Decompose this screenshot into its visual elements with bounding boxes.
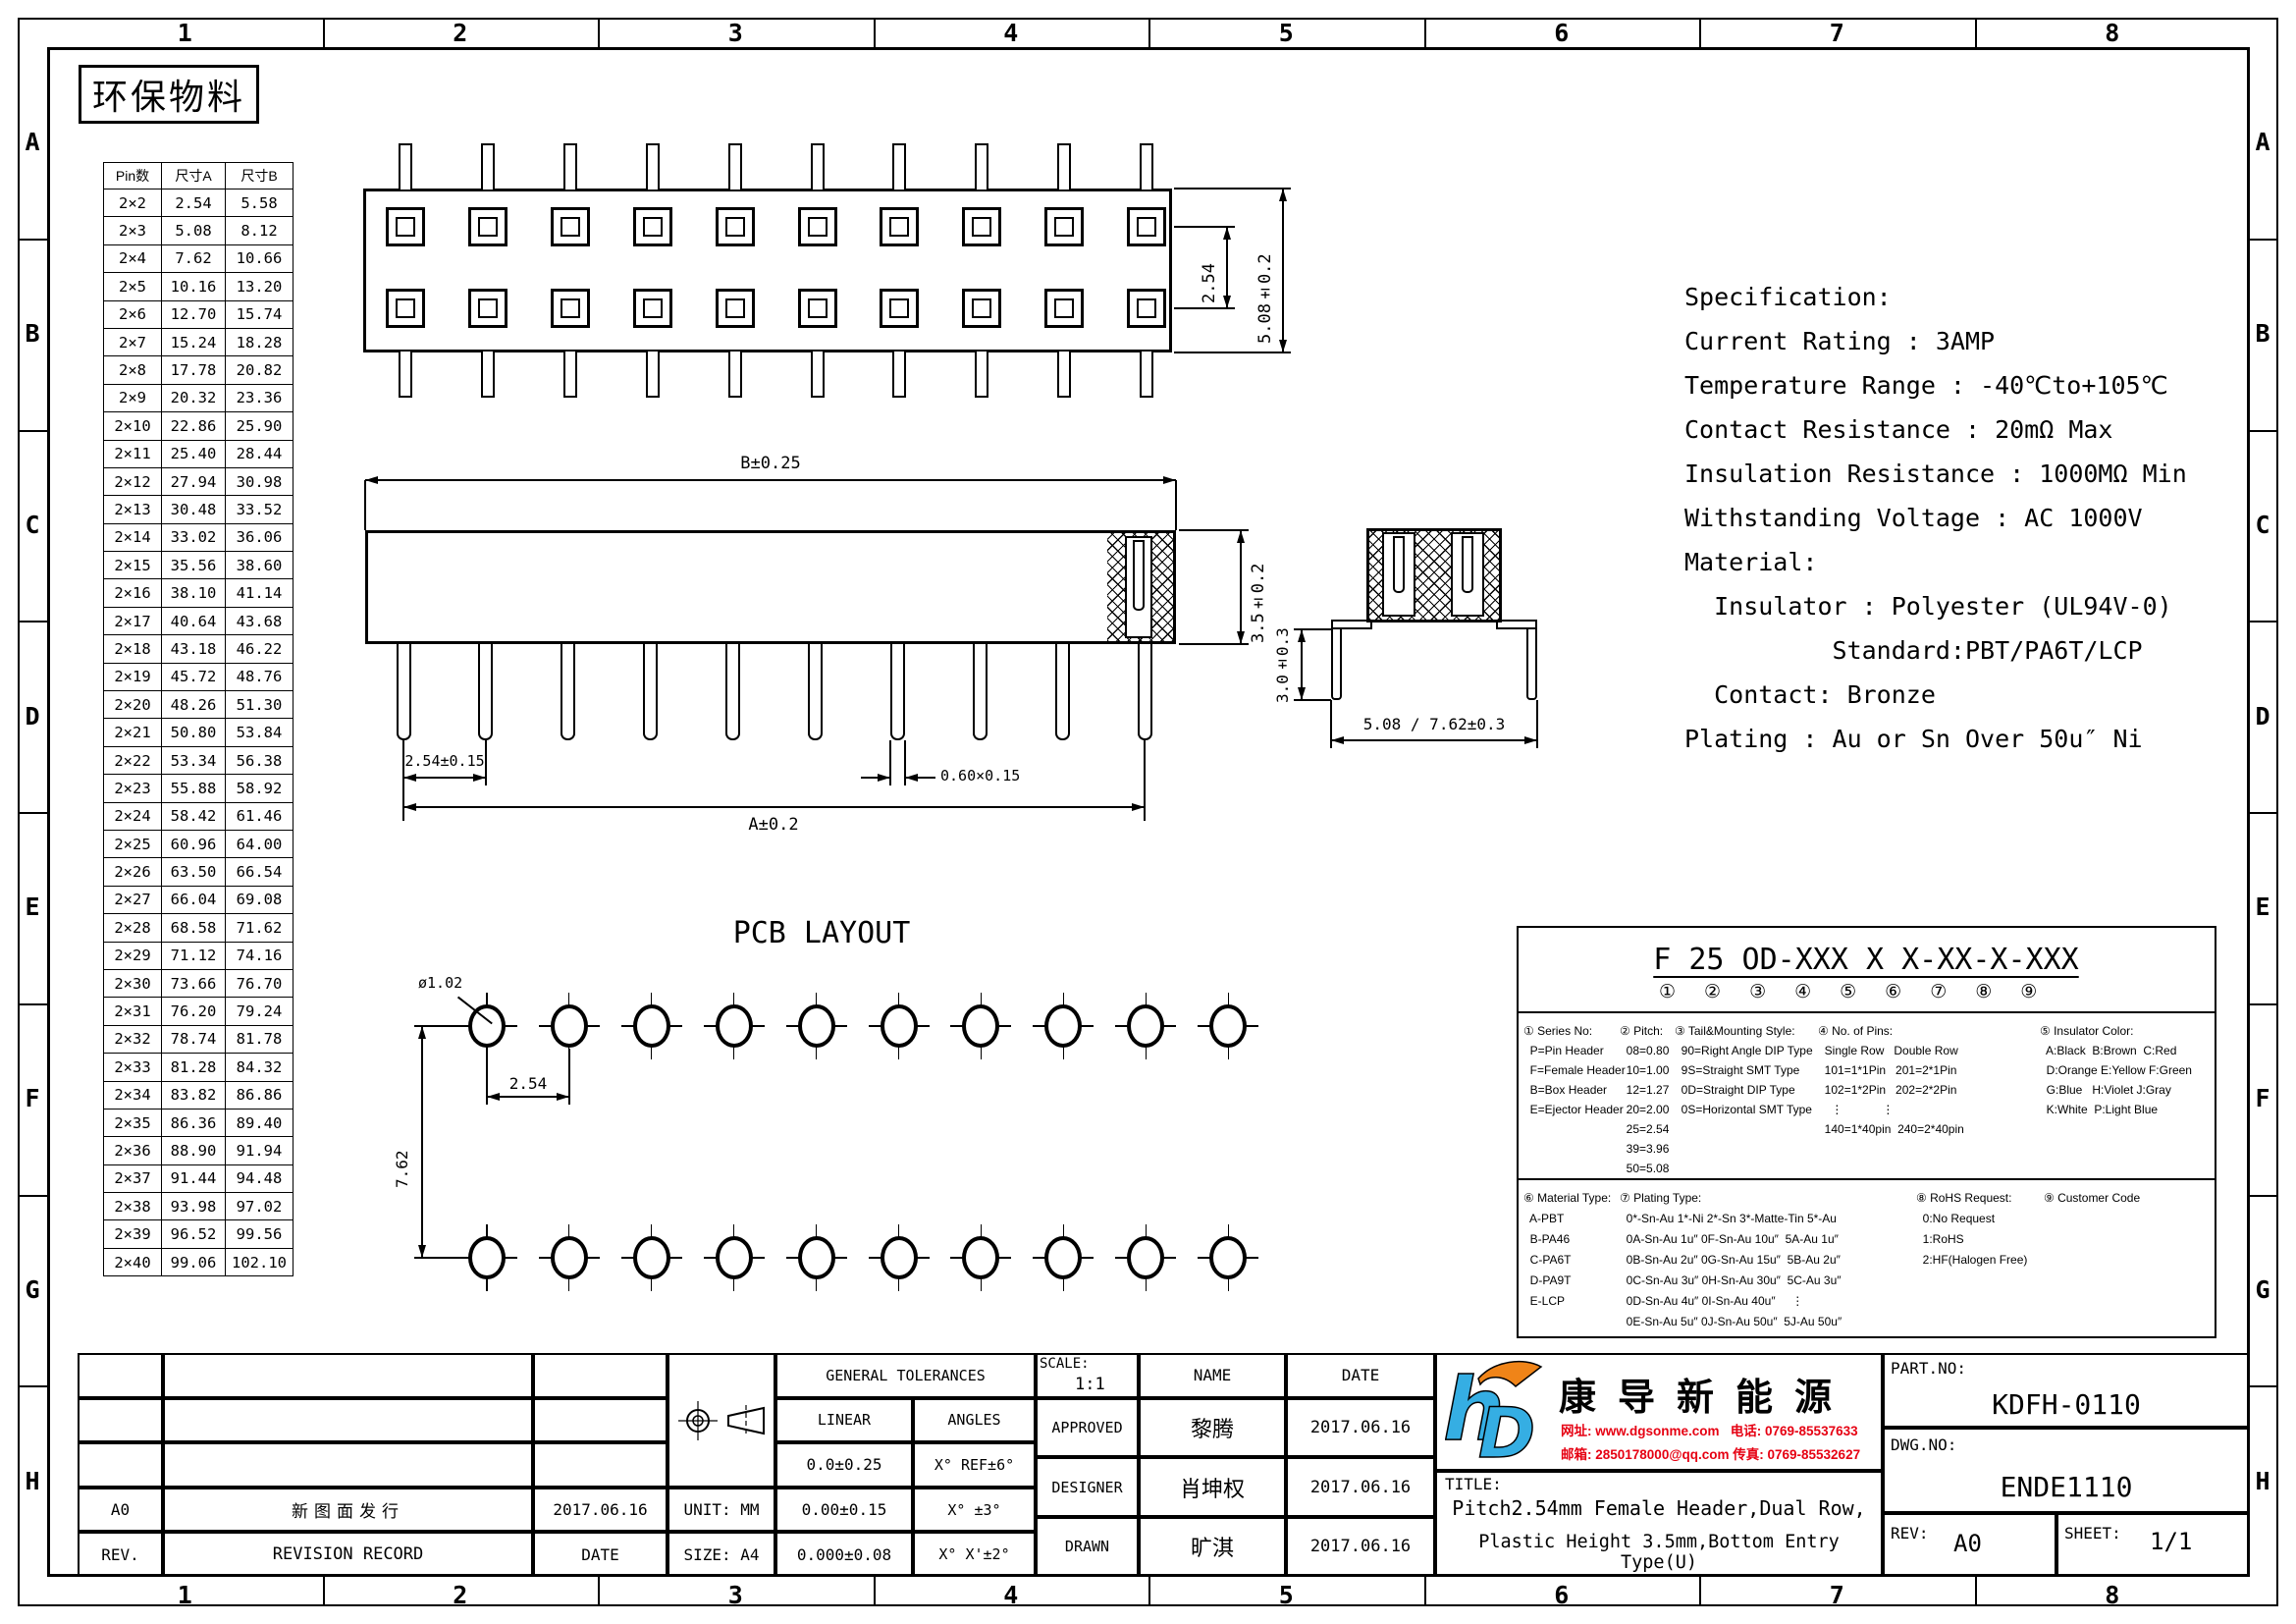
tolerance-angles-header: ANGLES xyxy=(913,1398,1036,1443)
sheet-value: 1/1 xyxy=(2150,1528,2192,1555)
side-view-leg-left xyxy=(1331,627,1342,700)
revision-cell xyxy=(163,1398,533,1443)
dimension-arrow xyxy=(365,476,378,484)
ordering-section: ④ No. of Pins: Single Row Double Row 101… xyxy=(1818,1021,1964,1139)
signoff-name: 肖坤权 xyxy=(1139,1457,1286,1517)
table-row: 2×1945.7248.76 xyxy=(104,663,294,690)
top-view-pin xyxy=(399,143,412,191)
frame-column-label: 2 xyxy=(323,19,599,47)
pcb-hole xyxy=(798,1236,835,1279)
dimension-arrow xyxy=(1223,296,1231,308)
top-view-contact-inner xyxy=(889,217,909,237)
dimension-arrow xyxy=(487,1093,500,1101)
top-view-contact-inner xyxy=(561,298,580,318)
table-row: 2×47.6210.66 xyxy=(104,244,294,272)
frame-row-label: G xyxy=(2248,1275,2277,1304)
frame-tick xyxy=(2250,1385,2278,1387)
tolerance-linear-value: 0.000±0.08 xyxy=(775,1532,913,1577)
pcb-hole xyxy=(798,1004,835,1048)
side-view-leg-right xyxy=(1526,627,1537,700)
name-header: NAME xyxy=(1139,1353,1286,1398)
signoff-name: 黎腾 xyxy=(1139,1398,1286,1458)
spec-line: Insulation Resistance : 1000MΩ Min xyxy=(1684,460,2187,488)
dimension-line xyxy=(1174,352,1291,353)
frame-row-label: F xyxy=(18,1084,47,1112)
table-row: 2×510.1613.20 xyxy=(104,273,294,300)
frame-tick xyxy=(18,1003,47,1005)
table-row: 2×3688.9091.94 xyxy=(104,1137,294,1164)
table-row: 2×2048.2651.30 xyxy=(104,691,294,719)
revision-cell: A0 xyxy=(78,1488,163,1533)
ordering-section: ⑤ Insulator Color: A:Black B:Brown C:Red… xyxy=(2040,1021,2192,1119)
table-row: 2×1535.5638.60 xyxy=(104,552,294,579)
signoff-date: 2017.06.16 xyxy=(1286,1398,1435,1458)
table-row: 2×22.545.58 xyxy=(104,189,294,217)
frame-row-label: C xyxy=(18,511,47,539)
projection-cone-icon xyxy=(725,1405,767,1436)
table-row: 2×920.3223.36 xyxy=(104,384,294,411)
part-no-label: PART.NO: xyxy=(1891,1359,1966,1378)
dimension-arrow xyxy=(1298,687,1306,700)
top-view-pin xyxy=(399,350,412,398)
signoff-role: APPROVED xyxy=(1036,1398,1139,1458)
front-view-pin xyxy=(973,644,988,740)
table-row: 2×1330.4833.52 xyxy=(104,496,294,523)
table-row: 2×1638.1041.14 xyxy=(104,579,294,607)
top-view-contact-inner xyxy=(725,217,745,237)
frame-row-label: E xyxy=(18,893,47,921)
frame-column-label: 6 xyxy=(1424,19,1700,47)
drawing-title-line1: Pitch2.54mm Female Header,Dual Row, xyxy=(1435,1496,1883,1520)
revision-cell: 2017.06.16 xyxy=(533,1488,667,1533)
frame-tick xyxy=(2250,621,2278,623)
ordering-section: ⑨ Customer Code xyxy=(2044,1188,2140,1209)
eco-material-stamp: 环保物料 xyxy=(79,65,259,124)
spec-line: Standard:PBT/PA6T/LCP xyxy=(1684,636,2143,665)
frame-tick xyxy=(2250,430,2278,432)
table-row: 2×817.7820.82 xyxy=(104,356,294,384)
dimension-line xyxy=(403,806,1145,808)
frame-tick xyxy=(18,621,47,623)
table-row: 2×715.2418.28 xyxy=(104,328,294,355)
top-view-contact-inner xyxy=(643,298,663,318)
dimension-line xyxy=(1331,739,1537,741)
top-view-contact-inner xyxy=(1137,298,1156,318)
front-view-pin xyxy=(561,644,575,740)
ordering-divider-2 xyxy=(1517,1178,2216,1180)
frame-tick xyxy=(1699,18,1701,47)
pcb-hole xyxy=(551,1236,588,1279)
front-view-pin xyxy=(1055,644,1070,740)
frame-column-label: 4 xyxy=(874,1581,1149,1609)
tolerance-angles-value: X° REF±6° xyxy=(913,1442,1036,1488)
table-row: 2×1433.0236.06 xyxy=(104,523,294,551)
revision-cell xyxy=(78,1398,163,1443)
dimension-arrow xyxy=(403,803,416,811)
dimension-arrow xyxy=(1223,227,1231,240)
table-row: 2×2355.8858.92 xyxy=(104,775,294,802)
sheet-label: SHEET: xyxy=(2064,1524,2121,1543)
frame-tick xyxy=(18,239,47,241)
side-view-span-dim: 5.08 / 7.62±0.3 xyxy=(1356,715,1513,733)
pcb-hole xyxy=(716,1004,753,1048)
front-view-body xyxy=(365,530,1176,644)
frame-tick xyxy=(2250,1003,2278,1005)
frame-row-label: G xyxy=(18,1275,47,1304)
table-row: 2×35.088.12 xyxy=(104,217,294,244)
top-view-pin xyxy=(892,143,906,191)
frame-column-label: 6 xyxy=(1424,1581,1700,1609)
revision-cell xyxy=(163,1353,533,1398)
rev-value: A0 xyxy=(1953,1530,1982,1557)
frame-row-label: C xyxy=(2248,511,2277,539)
dimension-arrow xyxy=(403,774,416,782)
frame-tick xyxy=(18,1385,47,1387)
pcb-row-dim: 7.62 xyxy=(393,1098,411,1188)
frame-row-label: D xyxy=(2248,702,2277,731)
top-view-pin xyxy=(646,350,660,398)
dimension-arrow xyxy=(473,774,486,782)
top-view-contact-inner xyxy=(478,217,498,237)
spec-line: Insulator : Polyester (UL94V-0) xyxy=(1684,592,2172,621)
table-row: 2×1022.8625.90 xyxy=(104,412,294,440)
frame-tick xyxy=(323,1577,325,1606)
pcb-hole xyxy=(468,1236,506,1279)
pcb-hole xyxy=(468,1004,506,1048)
table-row: 2×2253.3456.38 xyxy=(104,746,294,774)
pcb-hole-dim: ø1.02 xyxy=(418,974,462,992)
frame-column-label: 8 xyxy=(1975,1581,2251,1609)
dimension-arrow xyxy=(1524,736,1537,744)
top-view-pin xyxy=(892,350,906,398)
tolerance-header: GENERAL TOLERANCES xyxy=(775,1353,1036,1398)
signoff-role: DESIGNER xyxy=(1036,1457,1139,1517)
frame-column-label: 4 xyxy=(874,19,1149,47)
table-row: 2×2560.9664.00 xyxy=(104,830,294,857)
frame-tick xyxy=(1424,18,1426,47)
table-row: 2×3893.9897.02 xyxy=(104,1193,294,1220)
spec-line: Contact: Bronze xyxy=(1684,680,1936,709)
frame-row-label: H xyxy=(18,1467,47,1495)
company-logo: h D xyxy=(1445,1359,1547,1465)
top-view-contact-inner xyxy=(1054,217,1074,237)
size-cell: SIZE: A4 xyxy=(667,1532,775,1577)
signoff-date: 2017.06.16 xyxy=(1286,1457,1435,1517)
frame-column-label: 3 xyxy=(598,1581,874,1609)
frame-row-label: E xyxy=(2248,893,2277,921)
top-view-pin xyxy=(811,143,825,191)
table-row: 2×612.7015.74 xyxy=(104,300,294,328)
frame-tick xyxy=(1699,1577,1701,1606)
frame-tick xyxy=(2250,812,2278,814)
dimension-line xyxy=(1174,188,1291,189)
tolerance-angles-value: X° X'±2° xyxy=(913,1532,1036,1577)
projection-symbol-cell xyxy=(667,1353,775,1488)
revision-cell: REVISION RECORD xyxy=(163,1532,533,1577)
dimension-arrow xyxy=(878,774,890,782)
frame-row-label: A xyxy=(2248,128,2277,156)
dimension-arrow xyxy=(1237,530,1245,543)
dimension-line xyxy=(421,1026,423,1258)
top-view-pin xyxy=(481,350,495,398)
top-view-contact-inner xyxy=(972,298,991,318)
table-row: 2×2971.1274.16 xyxy=(104,942,294,969)
dimension-arrow xyxy=(1237,631,1245,644)
tolerance-angles-value: X° ±3° xyxy=(913,1488,1036,1533)
dimension-arrow xyxy=(1132,803,1145,811)
top-view-pin xyxy=(563,350,577,398)
scale-label: SCALE: xyxy=(1040,1356,1090,1372)
tolerance-linear-header: LINEAR xyxy=(775,1398,913,1443)
front-view-pin xyxy=(890,644,905,740)
dimension-arrow xyxy=(418,1245,426,1258)
table-row: 2×3381.2884.32 xyxy=(104,1054,294,1081)
pcb-hole xyxy=(551,1004,588,1048)
frame-column-label: 7 xyxy=(1699,19,1975,47)
revision-cell xyxy=(163,1442,533,1488)
revision-cell xyxy=(78,1442,163,1488)
side-view-contact-left xyxy=(1393,536,1405,593)
frame-tick xyxy=(1148,18,1150,47)
date-header: DATE xyxy=(1286,1353,1435,1398)
table-row: 2×2458.4261.46 xyxy=(104,802,294,830)
dimension-arrow xyxy=(1279,189,1287,201)
revision-cell: DATE xyxy=(533,1532,667,1577)
frame-column-label: 1 xyxy=(47,19,323,47)
top-view-contact-inner xyxy=(396,298,415,318)
dimension-arrow xyxy=(1298,629,1306,642)
ordering-section: ① Series No: P=Pin Header F=Female Heade… xyxy=(1523,1021,1626,1119)
pcb-layout-title: PCB LAYOUT xyxy=(684,916,959,950)
pin-dimension-table: Pin数尺寸A尺寸B2×22.545.582×35.088.122×47.621… xyxy=(103,162,294,1276)
frame-column-label: 5 xyxy=(1148,19,1424,47)
top-view-pin xyxy=(811,350,825,398)
dimension-arrow xyxy=(905,774,918,782)
signoff-role: DRAWN xyxy=(1036,1517,1139,1577)
drawing-sheet: 1122334455667788AABBCCDDEEFFGGHH 环保物料 Pi… xyxy=(0,0,2296,1624)
hd-logo-icon: h D xyxy=(1445,1359,1547,1465)
side-view-height-dim: 3.0±0.3 xyxy=(1273,626,1292,703)
dwg-no-label: DWG.NO: xyxy=(1891,1435,1956,1454)
front-view-pin xyxy=(1138,644,1152,740)
pcb-hole xyxy=(633,1236,670,1279)
pcb-hole xyxy=(716,1236,753,1279)
table-row: 2×3791.4494.48 xyxy=(104,1164,294,1192)
table-row: 2×1227.9430.98 xyxy=(104,467,294,495)
revision-cell: 新图面发行 xyxy=(163,1488,533,1533)
top-view-pin xyxy=(728,143,742,191)
table-row: 2×4099.06102.10 xyxy=(104,1248,294,1275)
pcb-hole xyxy=(633,1004,670,1048)
table-row: 2×1843.1846.22 xyxy=(104,635,294,663)
frame-tick xyxy=(1148,1577,1150,1606)
top-view-contact-inner xyxy=(1054,298,1074,318)
revision-cell: REV. xyxy=(78,1532,163,1577)
front-view-a-dim: A±0.2 xyxy=(715,815,832,835)
table-row: 2×3483.8286.86 xyxy=(104,1081,294,1109)
table-row: 2×3586.3689.40 xyxy=(104,1109,294,1136)
svg-text:D: D xyxy=(1478,1393,1535,1465)
ordering-section: ⑦ Plating Type: 0*-Sn-Au 1*-Ni 2*-Sn 3*-… xyxy=(1620,1188,1842,1332)
pcb-hole xyxy=(881,1004,918,1048)
frame-column-label: 7 xyxy=(1699,1581,1975,1609)
top-view-contact-inner xyxy=(889,298,909,318)
top-view-pitch-dim: 2.54 xyxy=(1200,233,1219,303)
dwg-no-value: ENDE1110 xyxy=(1883,1471,2250,1503)
title-label: TITLE: xyxy=(1445,1475,1502,1493)
front-view-pitch-dim: 2.54±0.15 xyxy=(389,752,501,770)
signoff-name: 旷淇 xyxy=(1139,1517,1286,1577)
dimension-line xyxy=(1282,189,1284,352)
pcb-hole xyxy=(1209,1236,1247,1279)
front-view-pin xyxy=(478,644,493,740)
projection-circle-icon xyxy=(676,1399,720,1442)
frame-tick xyxy=(598,1577,600,1606)
top-view-contact-inner xyxy=(972,217,991,237)
table-row: 2×1740.6443.68 xyxy=(104,607,294,634)
dimension-arrow xyxy=(1331,736,1344,744)
top-view-pin xyxy=(1057,143,1071,191)
front-view-pin xyxy=(643,644,658,740)
top-view-contact-inner xyxy=(725,298,745,318)
frame-tick xyxy=(1975,18,1977,47)
pcb-hole xyxy=(1127,1004,1164,1048)
table-row: 2×3176.2079.24 xyxy=(104,998,294,1025)
table-row: 2×2868.5871.62 xyxy=(104,914,294,942)
spec-line: Material: xyxy=(1684,548,1817,576)
revision-cell xyxy=(533,1442,667,1488)
frame-column-label: 5 xyxy=(1148,1581,1424,1609)
frame-row-label: A xyxy=(18,128,47,156)
revision-cell xyxy=(533,1398,667,1443)
front-view-contact xyxy=(1133,540,1145,611)
top-view-pin xyxy=(1057,350,1071,398)
frame-row-label: D xyxy=(18,702,47,731)
tolerance-linear-value: 0.00±0.15 xyxy=(775,1488,913,1533)
frame-row-label: H xyxy=(2248,1467,2277,1495)
spec-line: Contact Resistance : 20mΩ Max xyxy=(1684,415,2113,444)
spec-line: Withstanding Voltage : AC 1000V xyxy=(1684,504,2143,532)
frame-tick xyxy=(2250,1195,2278,1197)
table-row: 2×2150.8053.84 xyxy=(104,719,294,746)
top-view-width-dim: 5.08±0.2 xyxy=(1255,201,1275,344)
dimension-arrow xyxy=(1163,476,1176,484)
top-view-pin xyxy=(646,143,660,191)
part-number-format: F 25 OD-XXX X X-XX-X-XXX xyxy=(1572,943,2161,977)
pcb-hole xyxy=(881,1236,918,1279)
spec-line: Plating : Au or Sn Over 50u″ Ni xyxy=(1684,725,2143,753)
ordering-divider-1 xyxy=(1517,1011,2216,1013)
table-row: 2×1125.4028.44 xyxy=(104,440,294,467)
table-row: 2×3996.5299.56 xyxy=(104,1220,294,1248)
top-view-pin xyxy=(975,143,988,191)
unit-cell: UNIT: MM xyxy=(667,1488,775,1533)
dimension-line xyxy=(1240,530,1242,644)
rev-label: REV: xyxy=(1891,1524,1929,1543)
frame-column-label: 2 xyxy=(323,1581,599,1609)
ordering-section: ⑥ Material Type: A-PBT B-PA46 C-PA6T D-P… xyxy=(1523,1188,1611,1312)
frame-tick xyxy=(598,18,600,47)
spec-line: Temperature Range : -40℃to+105℃ xyxy=(1684,371,2168,400)
front-view-pin-dim: 0.60×0.15 xyxy=(940,767,1020,785)
top-view-pin xyxy=(1140,350,1153,398)
frame-tick xyxy=(1424,1577,1426,1606)
top-view-pin xyxy=(563,143,577,191)
frame-tick xyxy=(18,430,47,432)
frame-tick xyxy=(2250,239,2278,241)
top-view-contact-inner xyxy=(1137,217,1156,237)
top-view-contact-inner xyxy=(643,217,663,237)
top-view-contact-inner xyxy=(478,298,498,318)
front-view-pin xyxy=(808,644,823,740)
top-view-pin xyxy=(1140,143,1153,191)
dimension-arrow xyxy=(418,1026,426,1039)
spec-line: Current Rating : 3AMP xyxy=(1684,327,1995,355)
top-view-contact-inner xyxy=(808,298,828,318)
frame-tick xyxy=(874,18,876,47)
pcb-pitch-dim: 2.54 xyxy=(494,1074,562,1093)
table-row: 2×3278.7481.78 xyxy=(104,1025,294,1053)
ordering-section: ② Pitch: 08=0.80 10=1.00 12=1.27 20=2.00… xyxy=(1620,1021,1669,1178)
frame-tick xyxy=(18,812,47,814)
company-contact-line1: 网址: www.dgsonme.com 电话: 0769-85537633 xyxy=(1561,1420,1858,1439)
pcb-hole xyxy=(1127,1236,1164,1279)
drawing-title-line2: Plastic Height 3.5mm,Bottom Entry Type(U… xyxy=(1435,1532,1883,1573)
part-number-format-marks: ①②③④⑤⑥⑦⑧⑨ xyxy=(1659,981,2169,1002)
dimension-line xyxy=(1175,480,1177,530)
front-view-pin xyxy=(397,644,411,740)
frame-column-label: 1 xyxy=(47,1581,323,1609)
frame-tick xyxy=(1975,1577,1977,1606)
frame-column-label: 8 xyxy=(1975,19,2251,47)
top-view-pin xyxy=(481,143,495,191)
revision-cell xyxy=(78,1353,163,1398)
top-view-pin xyxy=(975,350,988,398)
frame-row-label: B xyxy=(2248,319,2277,348)
front-view-b-dim: B±0.25 xyxy=(677,454,864,473)
side-view-contact-right xyxy=(1462,536,1473,593)
dimension-line xyxy=(364,480,366,530)
front-view-pin xyxy=(725,644,740,740)
tolerance-linear-value: 0.0±0.25 xyxy=(775,1442,913,1488)
signoff-date: 2017.06.16 xyxy=(1286,1517,1435,1577)
table-row: 2×2766.0469.08 xyxy=(104,886,294,913)
frame-tick xyxy=(874,1577,876,1606)
dimension-arrow xyxy=(557,1093,569,1101)
front-view-height-dim: 3.5±0.2 xyxy=(1249,533,1268,643)
top-view-contact-inner xyxy=(396,217,415,237)
frame-tick xyxy=(18,1195,47,1197)
frame-row-label: F xyxy=(2248,1084,2277,1112)
part-no-value: KDFH-0110 xyxy=(1883,1388,2250,1421)
ordering-section: ⑧ RoHS Request: 0:No Request 1:RoHS 2:HF… xyxy=(1916,1188,2027,1271)
frame-tick xyxy=(323,18,325,47)
company-contact-line2: 邮箱: 2850178000@qq.com 传真: 0769-85532627 xyxy=(1561,1443,1860,1463)
top-view-contact-inner xyxy=(561,217,580,237)
dimension-line xyxy=(365,479,1176,481)
table-row: 2×2663.5066.54 xyxy=(104,858,294,886)
frame-row-label: B xyxy=(18,319,47,348)
ordering-section: ③ Tail&Mounting Style: 90=Right Angle DI… xyxy=(1675,1021,1813,1119)
table-row: 2×3073.6676.70 xyxy=(104,969,294,997)
company-name: 康导新能源 xyxy=(1559,1367,1875,1421)
frame-column-label: 3 xyxy=(598,19,874,47)
spec-line: Specification: xyxy=(1684,283,1892,311)
pcb-hole xyxy=(1209,1004,1247,1048)
revision-cell xyxy=(533,1353,667,1398)
top-view-contact-inner xyxy=(808,217,828,237)
top-view-pin xyxy=(728,350,742,398)
